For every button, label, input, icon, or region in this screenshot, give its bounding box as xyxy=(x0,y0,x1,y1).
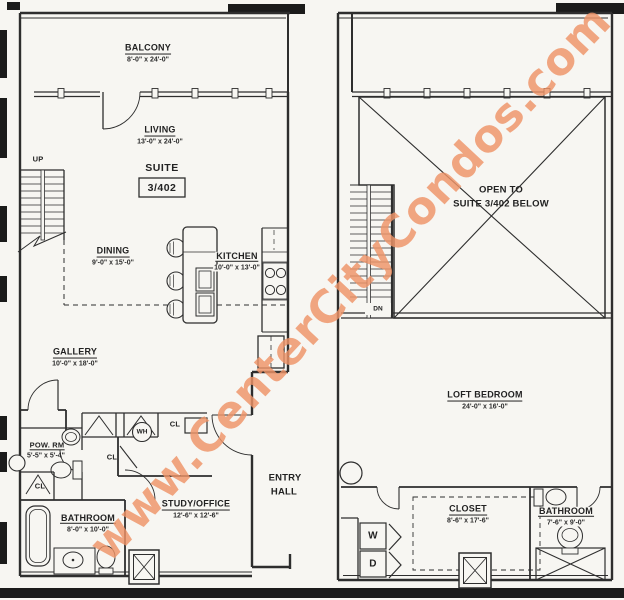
room-dims-study: 12'-6" x 12'-6" xyxy=(173,513,219,520)
powder-sink xyxy=(62,429,80,445)
column xyxy=(340,462,362,484)
closet-label-cl2: CL xyxy=(107,453,117,462)
room-label-kitchen: KITCHEN xyxy=(215,252,258,262)
elevator-level2 xyxy=(459,553,491,588)
room-label-loft: LOFT BEDROOM xyxy=(447,391,522,402)
stairs-down-label: DN xyxy=(372,306,383,313)
room-label-balcony: BALCONY xyxy=(125,44,171,55)
room-dims-bathroom2: 7'-6" x 9'-0" xyxy=(546,520,586,527)
room-dims-balcony: 8'-0" x 24'-0" xyxy=(127,57,169,64)
suite-number: 3/402 xyxy=(148,182,177,194)
room-dims-closet2: 8'-6" x 17'-6" xyxy=(447,518,489,525)
toilet-level2 xyxy=(546,489,566,505)
entry-hall-label-2: HALL xyxy=(271,487,297,498)
closet-label-cl3: CL xyxy=(35,482,45,491)
suite-label: SUITE xyxy=(145,162,178,174)
open-below-label-1: OPEN TO xyxy=(479,185,523,196)
room-label-gallery: GALLERY xyxy=(53,348,97,359)
room-dims-loft: 24'-0" x 16'-0" xyxy=(462,404,508,411)
stairs-up-label: UP xyxy=(33,155,44,164)
room-label-closet2: CLOSET xyxy=(449,505,487,516)
room-dims-kitchen: 10'-0" x 13'-0" xyxy=(213,265,261,272)
room-dims-dining: 9'-0" x 15'-0" xyxy=(92,260,134,267)
entry-hall-label-1: ENTRY xyxy=(269,473,302,484)
open-below-label-2: SUITE 3/402 BELOW xyxy=(453,199,549,210)
elevator-level1 xyxy=(129,550,159,584)
water-heater-label: WH xyxy=(137,429,148,436)
room-label-powder: POW. RM xyxy=(30,441,65,450)
pedestal-sink xyxy=(558,524,583,549)
dryer-label: D xyxy=(369,559,376,570)
room-label-dining: DINING xyxy=(97,247,130,258)
washer-label: W xyxy=(368,531,378,542)
kitchen-island xyxy=(167,227,217,323)
room-dims-powder: 5'-5" x 5'-4" xyxy=(27,453,65,460)
room-dims-living: 13'-0" x 24'-0" xyxy=(137,139,183,146)
floorplan-page: BALCONY 8'-0" x 24'-0" LIVING 13'-0" x 2… xyxy=(0,0,624,600)
bar-stools xyxy=(167,239,185,318)
room-label-living: LIVING xyxy=(144,126,175,137)
room-dims-gallery: 10'-0" x 18'-0" xyxy=(52,361,98,368)
column xyxy=(9,455,25,471)
room-label-bathroom2: BATHROOM xyxy=(538,507,594,517)
